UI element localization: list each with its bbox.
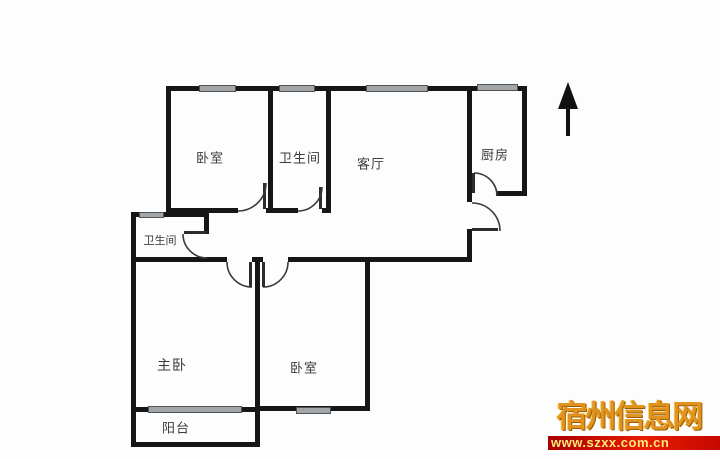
room-label-master-bedroom: 主卧 [157,355,187,375]
room-label-bathroom-top: 卫生间 [279,148,321,167]
door-arc-kitchen [474,173,497,196]
door-arc-master [227,262,252,287]
room-label-balcony: 阳台 [162,418,190,437]
room-label-bathroom-small: 卫生间 [144,232,177,248]
door-arc-entry [472,203,500,231]
door-arc-bedroom-bottom [263,262,288,287]
door-arc-bedroom-top [238,183,266,211]
door-swing-arcs-layer [0,0,720,459]
watermark-url-bar: www.szxx.com.cn [548,436,720,450]
north-arrow-icon [558,82,578,136]
watermark-site-name: 宿州信息网 [544,398,714,436]
room-label-living-room: 客厅 [357,154,385,173]
door-arc-bathroom-top [298,187,322,211]
room-label-kitchen: 厨房 [481,145,509,164]
floor-plan-canvas: 卧室 卫生间 客厅 厨房 卫生间 主卧 卧室 阳台 宿州信息网 www.szxx… [0,0,720,459]
door-arc-smallbath [183,234,207,258]
room-label-bedroom-bottom: 卧室 [290,358,318,377]
room-label-bedroom-top: 卧室 [196,148,224,167]
